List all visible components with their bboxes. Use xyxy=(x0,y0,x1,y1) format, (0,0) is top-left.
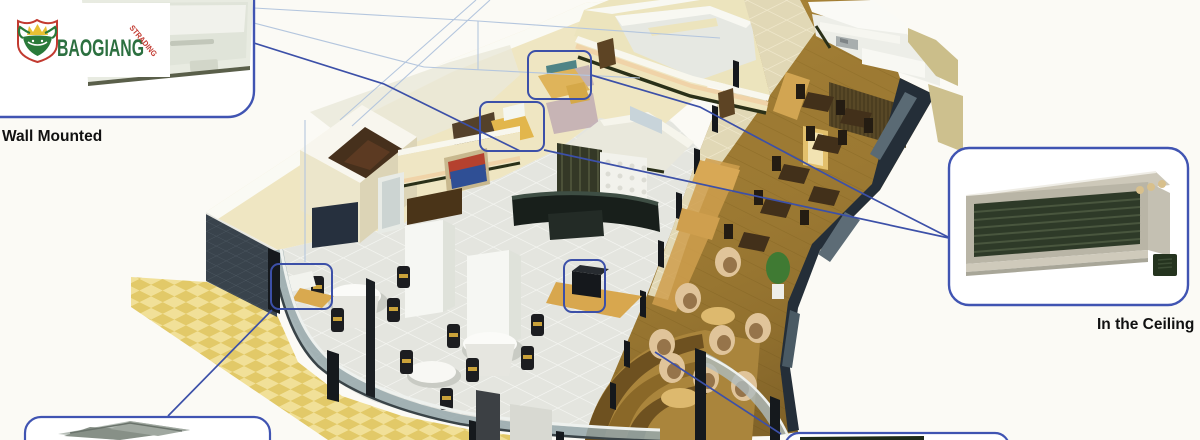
svg-text:In the Ceiling: In the Ceiling xyxy=(1097,316,1194,333)
svg-text:BAOGIANG: BAOGIANG xyxy=(57,35,144,62)
svg-text:Wall Mounted: Wall Mounted xyxy=(2,128,102,145)
